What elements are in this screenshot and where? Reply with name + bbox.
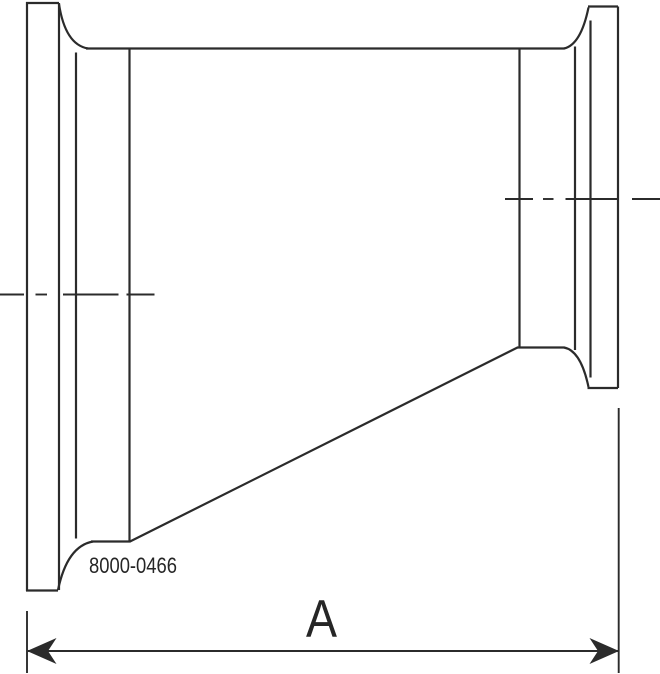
right-top-neck-curve xyxy=(564,8,589,49)
part-number-label: 8000-0466 xyxy=(89,553,177,578)
reducer-technical-drawing: 8000-0466 A xyxy=(0,0,660,674)
centerline-group xyxy=(0,199,660,295)
part-outline-group xyxy=(26,2,618,591)
taper-line xyxy=(130,348,518,542)
dimension-a-label: A xyxy=(306,590,338,649)
right-bottom-neck-curve xyxy=(564,348,589,388)
drawing-canvas: 8000-0466 A xyxy=(0,0,660,674)
left-bottom-neck-curve xyxy=(58,542,93,591)
left-top-neck-curve xyxy=(59,4,88,49)
